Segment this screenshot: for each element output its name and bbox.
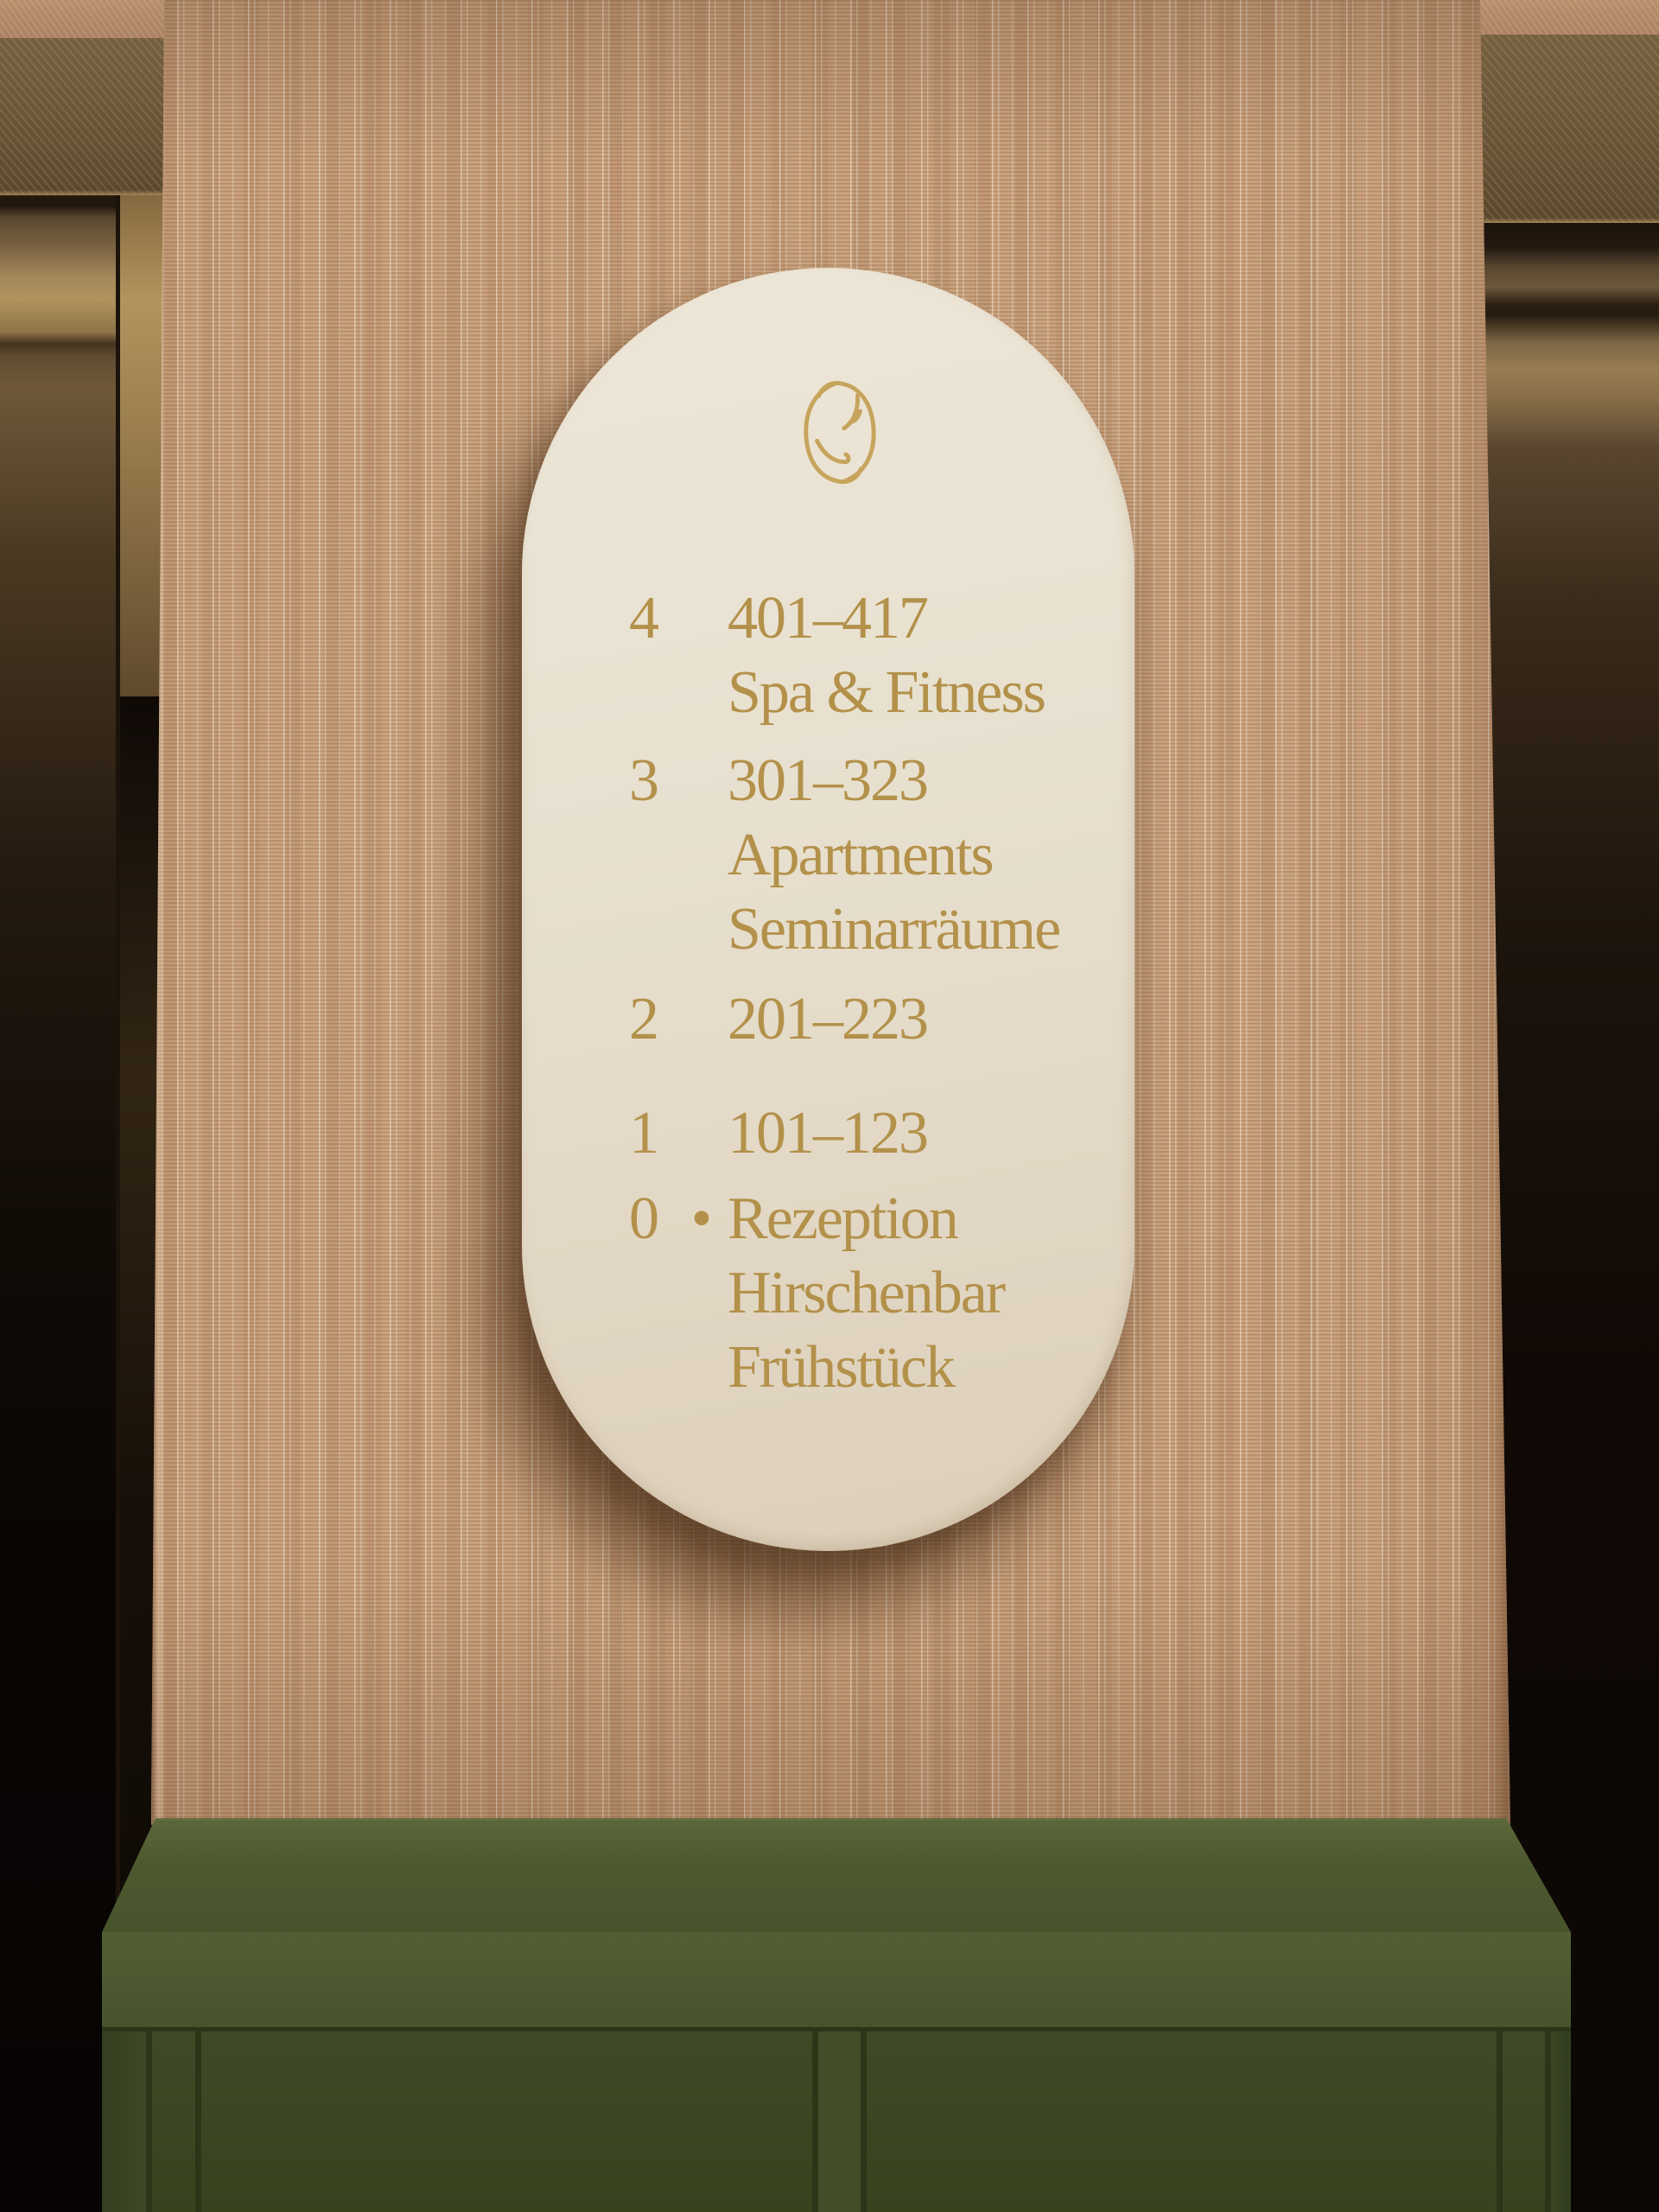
right-elevator-header <box>1473 35 1659 223</box>
floor-labels: 301–323ApartmentsSeminarräume <box>728 744 1135 967</box>
cabinet-stile-line <box>1545 2031 1551 2212</box>
floor-label: Seminarräume <box>728 893 1135 967</box>
cabinet-stile-line <box>146 2031 152 2212</box>
floor-label: Hirschenbar <box>728 1256 1135 1331</box>
floor-number: 4 <box>629 582 676 730</box>
floor-bullet-dot <box>676 1096 728 1171</box>
floor-number: 2 <box>629 982 676 1057</box>
floor-labels: 201–223 <box>728 982 1135 1057</box>
floor-row: 4 401–417Spa & Fitness <box>522 582 1135 730</box>
floor-label: 101–123 <box>728 1096 1135 1171</box>
floor-row: 2 201–223 <box>522 982 1135 1057</box>
cabinet-doors <box>102 2031 1571 2212</box>
floor-bullet-dot <box>676 982 728 1057</box>
cabinet-top-bevel <box>102 1809 1571 1932</box>
elevator-lobby-photo: 4 401–417Spa & Fitness 3 301–323Apartmen… <box>0 0 1659 2212</box>
floor-label: Spa & Fitness <box>728 656 1135 730</box>
cabinet-stile-line <box>812 2031 818 2212</box>
cabinet-stile-line <box>1497 2031 1503 2212</box>
cabinet-stile-line <box>195 2031 201 2212</box>
left-elevator-door <box>0 195 116 2212</box>
floor-label: 301–323 <box>728 744 1135 818</box>
floor-labels: 401–417Spa & Fitness <box>728 582 1135 730</box>
floor-row: 1 101–123 <box>522 1096 1135 1171</box>
floor-label: Rezeption <box>728 1182 1135 1256</box>
directory-sign: 4 401–417Spa & Fitness 3 301–323Apartmen… <box>522 268 1135 1551</box>
floor-labels: RezeptionHirschenbarFrühstück <box>728 1182 1135 1405</box>
floor-number: 3 <box>629 744 676 967</box>
left-elevator-header <box>0 38 171 195</box>
floor-label: Frühstück <box>728 1331 1135 1405</box>
floor-number: 0 <box>629 1182 676 1405</box>
floor-row: 3 301–323ApartmentsSeminarräume <box>522 744 1135 967</box>
floor-bullet-dot: • <box>676 1182 728 1405</box>
floor-bullet-dot <box>676 744 728 967</box>
floor-number: 1 <box>629 1096 676 1171</box>
floor-label: 401–417 <box>728 582 1135 656</box>
cabinet-left-shade <box>102 2031 147 2212</box>
floor-labels: 101–123 <box>728 1096 1135 1171</box>
floor-label: 201–223 <box>728 982 1135 1057</box>
floor-label: Apartments <box>728 818 1135 893</box>
cabinet-stile-line <box>861 2031 867 2212</box>
green-cabinet <box>102 1809 1571 2212</box>
floor-bullet-dot <box>676 582 728 730</box>
floor-row: 0 • RezeptionHirschenbarFrühstück <box>522 1182 1135 1405</box>
antler-monogram-icon <box>794 373 884 487</box>
cabinet-top-rail <box>102 1932 1571 2031</box>
floor-directory: 4 401–417Spa & Fitness 3 301–323Apartmen… <box>522 582 1135 1405</box>
cabinet-center-stile <box>818 2031 861 2212</box>
